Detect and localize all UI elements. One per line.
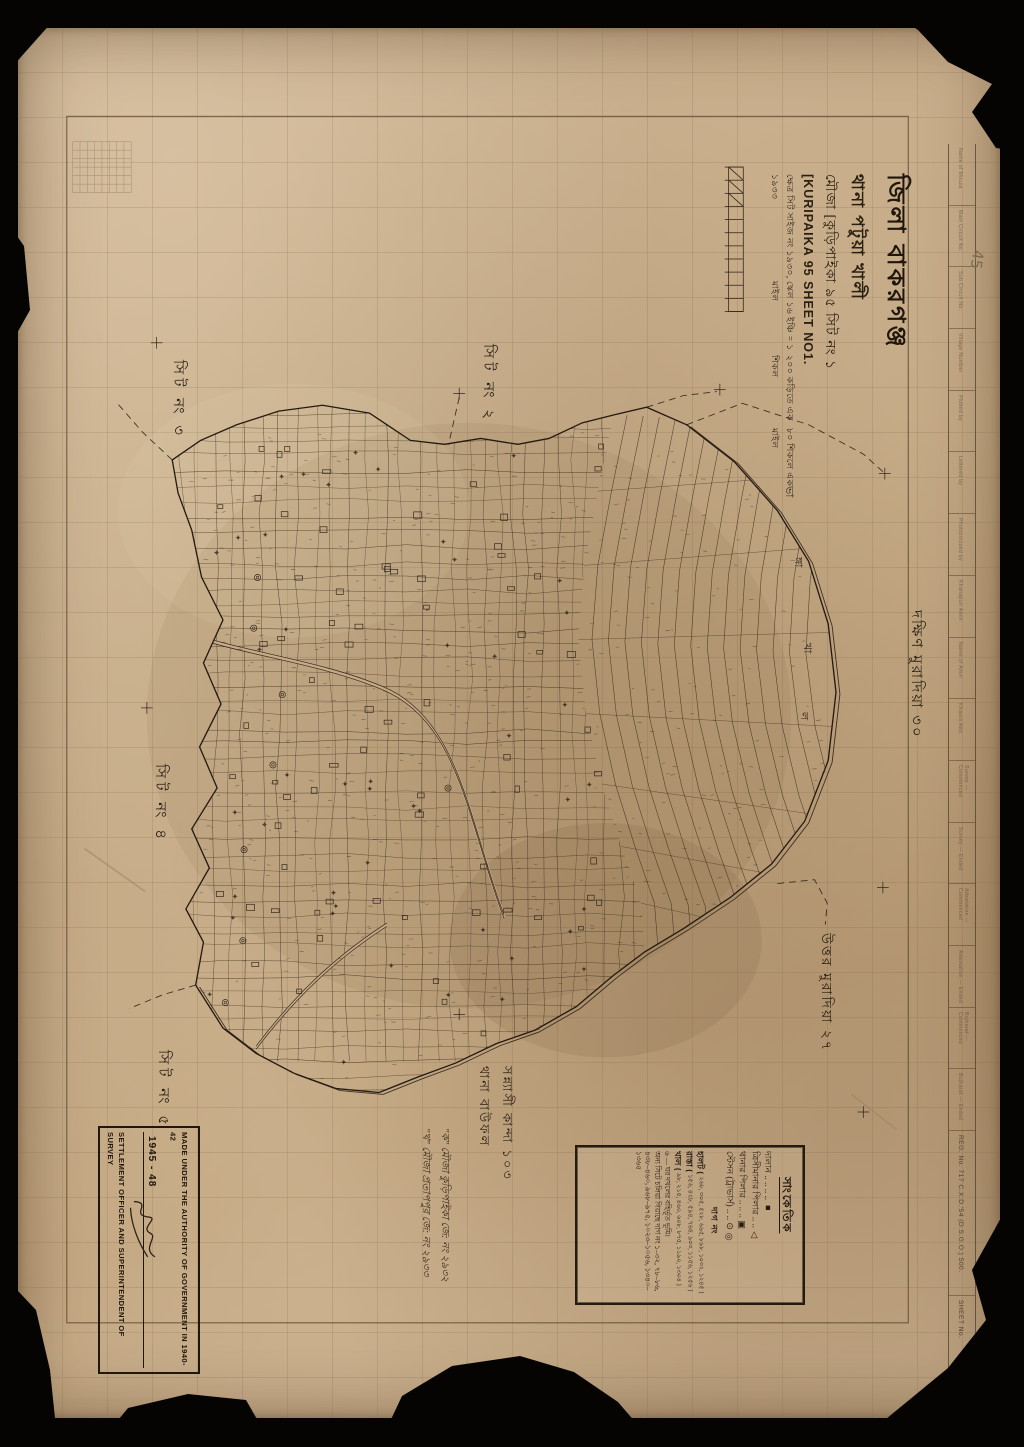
authority-stamp: MADE UNDER THE AUTHORITY OF GOVERNMENT I… (98, 1126, 200, 1374)
mouza-title: মৌজা [কুড়িপাইকা ৯৫ সিট নং ১ (817, 174, 841, 494)
legend-entry: দালান .. .. .. .. ■ (762, 1151, 773, 1299)
stamp-years: 1945 - 48 (143, 1132, 157, 1368)
margin-form-label: Sub Circuit No. (957, 271, 963, 310)
river-name-character: খা (797, 643, 816, 653)
margin-form-column: Name of MouzaMain Circuit No.Sub Circuit… (948, 144, 976, 1380)
stamp-line-1: MADE UNDER THE AUTHORITY OF GOVERNMENT I… (167, 1132, 190, 1368)
legend-dag-label: খাল { (673, 1151, 683, 1173)
mouza-label: মৌজা (822, 174, 837, 210)
legend-dag-entry: হালট { ২৬৮, ৩০৫, ৫২৮, ৬৯৫, ৮৯৮, ১০৩২, ১২… (695, 1151, 705, 1299)
legend-entry: ত্রিসীমানার পিলার .. .. △ (749, 1151, 760, 1299)
mouza-name-bengali: [কুড়িপাইকা ৯৫ সিট নং ১ (822, 215, 837, 371)
margin-form-label: Main Circuit No. (957, 210, 963, 252)
legend-entry-label: দালান (763, 1151, 773, 1175)
district-title: জিলা বাকরগঞ্জ (873, 174, 916, 494)
title-detail-line: ক্ষেত্র সিট সাইজ নং ১৯৩০, ১৯৩৩ (768, 174, 798, 281)
legend-entry: স্টেসন (ট্রাভার্স) .. .. ⊙ ◎ (724, 1151, 735, 1299)
legend-symbol: △ (750, 1230, 760, 1240)
margin-form-label: Attestation — Commenced (957, 888, 969, 945)
margin-form-cell: Village Number (949, 329, 975, 391)
legend-entry-label: থানার পিলার (738, 1151, 748, 1200)
legend-note: অন্য সিটে চলিয়া গিয়াছে দাগ নং ১–৩২, ৭৮… (635, 1151, 662, 1299)
margin-form-cell: Survey — Ended (949, 823, 975, 885)
legend-box: সাংকেতিক দালান .. .. .. .. ■ত্রিসীমানার … (575, 1145, 805, 1305)
adjacent-sheet-3-label: সিট নং ৩ (166, 360, 191, 439)
legend-heading: সাংকেতিক (776, 1151, 795, 1299)
thana-bauphal-label: থানা বাউফল (473, 1066, 494, 1246)
handwritten-footnotes: "ক" মৌজা কুড়িপাইকা জে: নং ২৯৩২ "খ" মৌজা… (414, 1128, 454, 1348)
legend-symbol: ▣ (738, 1220, 748, 1230)
pencil-annotation: 45 (967, 249, 987, 270)
margin-form-cell: Attestation — Ended (949, 946, 975, 1008)
legend-entry: থানার পিলার .. .. .. ▣ (736, 1151, 747, 1299)
title-detail-lines: ক্ষেত্র সিট সাইজ নং ১৯৩০, ১৯৩৩স্কেল ১৬ ই… (767, 174, 799, 494)
legend-dag-heading: দাগ নং (708, 1151, 722, 1299)
margin-form-cell: Khanapuri Amin (949, 576, 975, 638)
stamp-body: MADE UNDER THE AUTHORITY OF GOVERNMENT I… (105, 1132, 193, 1368)
river-name-character: ল (794, 712, 813, 720)
margin-form-label: Photozincoed by (957, 518, 963, 561)
scanned-cadastral-map-sheet: জিলা বাকরগঞ্জ থানা পটুয়া খালী মৌজা [কুড… (0, 0, 1024, 1447)
legend-entry-leader: .. .. (725, 1209, 735, 1223)
margin-form-cell: Lettered by (949, 452, 975, 514)
margin-form-label: Survey — Commenced (957, 765, 969, 822)
mouza-name-english: [KURIPAIKA 95 SHEET NO1. (801, 174, 815, 494)
stamp-line-2: SETTLEMENT OFFICER AND SUPERINTENDENT OF… (104, 1132, 127, 1368)
margin-form-cell: Photozincoed by (949, 514, 975, 576)
margin-form-cell: Bujharat — Ended (949, 1069, 975, 1131)
legend-symbol: ■ (763, 1202, 773, 1212)
margin-form-cell: Survey — Commenced (949, 761, 975, 823)
legend-dag-label: হালট { (696, 1151, 706, 1177)
margin-form-label: Plotted by (957, 395, 963, 421)
margin-form-cell: Bujharat — Commenced (949, 1008, 975, 1070)
margin-form-label: Name of Amin (957, 642, 963, 678)
margin-form-label: Name of Mouza (957, 148, 963, 189)
title-detail-line: ৮০ শিকলে এক মাইল (768, 428, 798, 494)
legend-dag-label: রাস্তা { (684, 1151, 694, 1174)
margin-form-label: Bujharat — Ended (957, 1073, 963, 1120)
legend-dag-entry: খাল { ৯৮, ২১৫, ৪৬০, ৬০৮, ৮৭৫, ১১৯০, ১৩০৪… (673, 1151, 683, 1299)
margin-form-label: Lettered by (957, 456, 963, 485)
legend-entry-leader: .. .. (750, 1217, 760, 1231)
legend-symbol: ⊙ ◎ (725, 1222, 735, 1242)
legend-entry-label: ত্রিসীমানার পিলার (750, 1151, 760, 1217)
legend-entry-leader: .. .. .. (738, 1200, 748, 1220)
margin-form-cell: Name of Amin (949, 638, 975, 700)
legend-dag-entry: রাস্তা { ১৫৬, ৪২৮, ৫৯৪, ৭৬৪, ৯০৩, ১১৫৬, … (684, 1151, 694, 1299)
river-name-character: ভা (779, 486, 798, 497)
legend-dag-numbers: ২৬৮, ৩০৫, ৫২৮, ৬৯৫, ৮৯৮, ১০৩২, ১২৪৫ } (698, 1177, 705, 1295)
margin-form-label: Bujharat — Commenced (957, 1012, 969, 1069)
neighbour-mouza-sannyasi-kanda: সন্ন্যাসী কান্দা ১০৩ থানা বাউফল (471, 1066, 519, 1246)
legend-dag-numbers: ৯৮, ২১৫, ৪৬০, ৬০৮, ৮৭৫, ১১৯০, ১৩০৪ } (675, 1173, 682, 1286)
margin-form-cell: Name of Mouza (949, 144, 975, 206)
footnote-kha: "খ" মৌজা প্রতাপপুর জে: নং ২৯৩৩ (416, 1128, 433, 1348)
margin-form-label: Khasra Attd. (957, 703, 963, 735)
adjacent-sheet-2-label: সিট নং ২ (476, 344, 501, 423)
margin-form-cell: Plotted by (949, 391, 975, 453)
margin-corner-text: REG. No. 717 C.X.D.'54 (D.S.G.O.) 500. (957, 1135, 964, 1273)
thana-title: থানা পটুয়া খালী (843, 174, 871, 494)
margin-form-label: Khanapuri Amin (957, 580, 963, 621)
paper: জিলা বাকরগঞ্জ থানা পটুয়া খালী মৌজা [কুড… (18, 28, 1000, 1418)
margin-form-cell: Sub Circuit No. (949, 267, 975, 329)
title-block: জিলা বাকরগঞ্জ থানা পটুয়া খালী মৌজা [কুড… (758, 174, 918, 494)
sannyasi-kanda-label: সন্ন্যাসী কান্দা ১০৩ (496, 1066, 517, 1246)
legend-dag-numbers: ১৫৬, ৪২৮, ৫৯৪, ৭৬৪, ৯০৩, ১১৫৬, ১২৫৬ } (686, 1174, 693, 1292)
legend-entry-label: স্টেসন (ট্রাভার্স) (725, 1151, 735, 1209)
neighbour-mouza-south-muradia: দক্ষিণ মুরাদিয়া ৩০ (904, 610, 929, 739)
title-detail-line: স্কেল ১৬ ইঞ্চি = ১ মাইল (768, 281, 798, 356)
adjacent-sheet-4-label: সিট নং ৪ (148, 764, 173, 843)
legend-note: ৬ — ঘর দখলের বহির্ভূত ভূমি। (663, 1151, 672, 1299)
adjacent-sheet-5-label: সিট নং ৫ (151, 1050, 176, 1129)
margin-form-cell: REG. No. 717 C.X.D.'54 (D.S.G.O.) 500. (949, 1131, 975, 1296)
margin-form-label: Survey — Ended (957, 827, 963, 870)
margin-form-label: Attestation — Ended (957, 950, 963, 1003)
margin-form-label: Village Number (957, 333, 963, 373)
legend-entry-leader: .. .. .. .. (763, 1175, 773, 1202)
neighbour-mouza-north-muradia: উত্তর মুরাদিয়া ২৭ (813, 933, 837, 1052)
margin-form-cell: Attestation — Commenced (949, 884, 975, 946)
margin-form-cell: Khasra Attd. (949, 699, 975, 761)
river-name-character: ঙ্গা (788, 557, 807, 568)
title-detail-line: ২০০ কড়িতে এক শিকল (768, 355, 798, 428)
margin-corner-text: SHEET No. (957, 1300, 964, 1338)
footnote-ka: "ক" মৌজা কুড়িপাইকা জে: নং ২৯৩২ (435, 1128, 452, 1348)
legend-body: সাংকেতিক দালান .. .. .. .. ■ত্রিসীমানার … (582, 1151, 798, 1299)
